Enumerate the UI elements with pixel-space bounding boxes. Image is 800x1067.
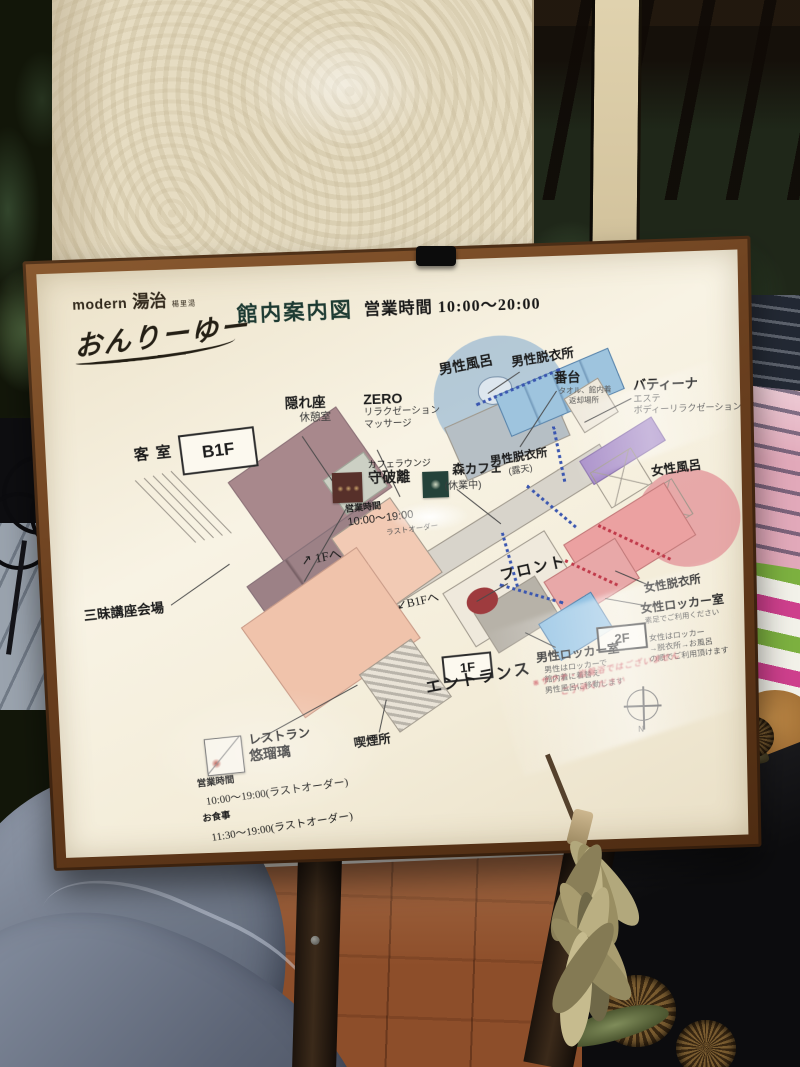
label-bandai: 番台 [554, 369, 581, 386]
to-1f-arrow: ↗ [300, 551, 313, 568]
easel-clip [416, 246, 456, 266]
whisk-stem [545, 754, 576, 821]
easel-bolt [311, 936, 320, 945]
ceiling-beams [520, 0, 800, 200]
compass-n: N [638, 725, 644, 735]
yururi-logo [204, 735, 246, 776]
label-patina-sub2: ボディーリラクゼーション [634, 401, 742, 416]
label-mori-cafe-status: (休業中) [445, 480, 482, 494]
label-rest-hours-title: 営業時間 [196, 775, 235, 791]
label-bandai-sub1: タオル、館内着 [558, 385, 611, 396]
label-meal-title: お食事 [202, 810, 232, 825]
label-yururi: 悠瑠璃 [248, 743, 291, 765]
label-bandai-sub2: 返却場所 [569, 395, 599, 406]
label-patina: バティーナ [633, 375, 698, 394]
compass-icon [626, 689, 659, 722]
label-sanmai-hall: 三昧講座会場 [83, 600, 165, 625]
label-meal-hours: 11:30～19:00(ラストオーダー) [211, 810, 354, 845]
shuhari-logo [332, 472, 363, 503]
label-shuhari: 守破離 [368, 468, 411, 487]
dried-leaf-whisk [492, 752, 692, 1052]
label-roten: (露天) [508, 463, 534, 478]
label-guest-rooms: 客室 [133, 443, 179, 466]
leader-line [171, 564, 230, 606]
label-zero-sub2: マッサージ [364, 418, 412, 432]
label-kakurega-sub: 休憩室 [299, 411, 331, 425]
label-womens-dressing: 女性脱衣所 [643, 572, 702, 596]
photo-scene: modern 湯治 楊里湯 おんりーゆー 館内案内図 営業時間 10:00～20… [0, 0, 800, 1067]
label-smoking: 喫煙所 [353, 732, 392, 752]
